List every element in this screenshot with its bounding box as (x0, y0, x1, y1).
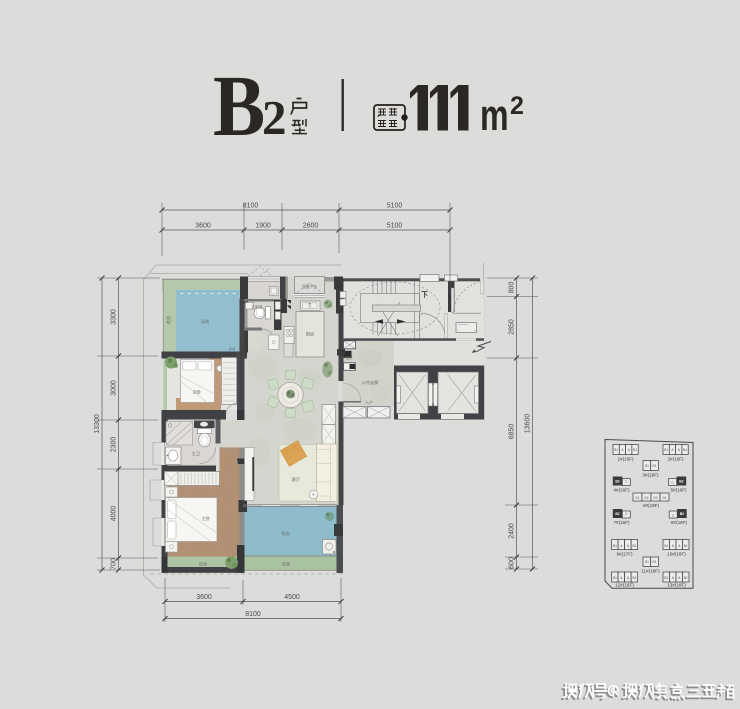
svg-text:阳台: 阳台 (282, 530, 290, 537)
svg-text:2300: 2300 (111, 437, 118, 453)
svg-text:B1: B1 (664, 576, 668, 580)
svg-text:600: 600 (509, 557, 516, 569)
svg-text:D1: D1 (635, 496, 639, 500)
svg-text:B1: B1 (613, 576, 617, 580)
svg-text:12#(18F): 12#(18F) (615, 583, 634, 588)
svg-text:入户: 入户 (365, 399, 373, 406)
svg-text:2400: 2400 (509, 523, 516, 539)
svg-text:B1: B1 (683, 448, 687, 452)
svg-text:2: 2 (510, 92, 524, 120)
svg-text:6#(18F): 6#(18F) (643, 503, 660, 508)
svg-text:D1: D1 (645, 464, 649, 468)
svg-text:5100: 5100 (387, 203, 403, 210)
svg-text:公共走廊: 公共走廊 (362, 379, 379, 386)
svg-text:花池: 花池 (165, 315, 172, 324)
svg-text:次卧: 次卧 (193, 389, 201, 396)
svg-text:7#(16F): 7#(16F) (613, 520, 630, 525)
svg-text:1900: 1900 (255, 223, 271, 230)
svg-text:泳池: 泳池 (201, 318, 210, 325)
svg-text:10#(18F): 10#(18F) (667, 552, 686, 557)
svg-text:2#(16F): 2#(16F) (667, 457, 684, 462)
svg-text:D2: D2 (653, 496, 657, 500)
svg-text:B2: B2 (679, 480, 683, 484)
svg-text:11#(18F): 11#(18F) (641, 569, 660, 574)
svg-text:4000: 4000 (111, 506, 118, 522)
svg-text:B1: B1 (684, 544, 688, 548)
svg-text:餐厅: 餐厅 (286, 392, 294, 399)
svg-text:B1: B1 (684, 576, 688, 580)
svg-text:B1: B1 (613, 544, 617, 548)
svg-text:厨房: 厨房 (306, 331, 314, 338)
svg-text:花池: 花池 (199, 561, 208, 568)
svg-text:D2: D2 (644, 496, 648, 500)
svg-text:花池: 花池 (282, 561, 291, 568)
svg-text:设备平台: 设备平台 (302, 284, 317, 289)
svg-text:主卧: 主卧 (202, 515, 210, 522)
svg-text:5#(16F): 5#(16F) (670, 488, 687, 493)
svg-text:8100: 8100 (243, 203, 259, 210)
svg-text:D1: D1 (653, 560, 657, 564)
svg-text:3600: 3600 (196, 594, 212, 601)
svg-text:5100: 5100 (387, 223, 403, 230)
svg-text:B2: B2 (680, 512, 684, 516)
svg-text:13#(18F): 13#(18F) (667, 583, 686, 588)
svg-text:B1: B1 (632, 576, 636, 580)
svg-text:B: B (213, 57, 265, 154)
svg-text:2850: 2850 (509, 319, 516, 335)
svg-text:8#(16F): 8#(16F) (671, 520, 688, 525)
svg-text:1#(16F): 1#(16F) (617, 457, 634, 462)
svg-text:700: 700 (111, 558, 118, 570)
svg-text:主卫: 主卫 (192, 450, 200, 456)
svg-text:9#(17F): 9#(17F) (616, 552, 633, 557)
svg-text:800: 800 (509, 282, 516, 294)
svg-text:4500: 4500 (284, 594, 300, 601)
svg-text:2: 2 (262, 90, 287, 145)
svg-text:B1: B1 (664, 544, 668, 548)
svg-text:m: m (480, 91, 509, 140)
svg-text:卫生间: 卫生间 (251, 305, 263, 310)
svg-text:2600: 2600 (303, 223, 319, 230)
svg-text:B1: B1 (614, 448, 618, 452)
svg-text:4#(16F): 4#(16F) (613, 488, 630, 493)
svg-text:B1: B1 (632, 544, 636, 548)
svg-text:B1: B1 (633, 448, 637, 452)
svg-text:客厅: 客厅 (292, 476, 300, 483)
svg-text:8100: 8100 (245, 611, 261, 618)
svg-text:6850: 6850 (509, 424, 516, 440)
svg-text:B1: B1 (664, 448, 668, 452)
svg-text:3000: 3000 (111, 380, 118, 396)
svg-text:D1: D1 (662, 496, 666, 500)
svg-text:B2: B2 (615, 480, 619, 484)
svg-text:13300: 13300 (94, 414, 101, 434)
svg-text:3600: 3600 (195, 223, 211, 230)
svg-text:3300: 3300 (111, 309, 118, 325)
svg-text:电井: 电井 (345, 355, 353, 360)
svg-text:B2: B2 (615, 512, 619, 516)
svg-text:3#(18F): 3#(18F) (642, 473, 659, 478)
svg-text:D1: D1 (645, 560, 649, 564)
svg-text:D1: D1 (653, 464, 657, 468)
svg-text:13600: 13600 (525, 414, 532, 434)
